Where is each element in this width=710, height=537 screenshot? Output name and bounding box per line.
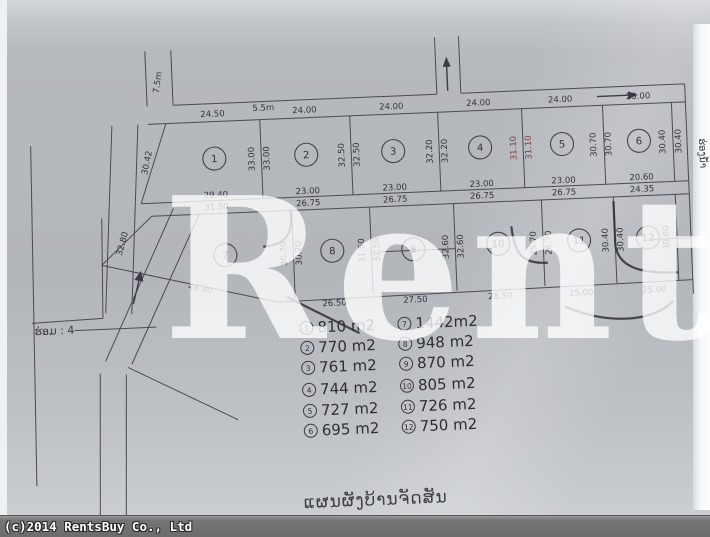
dim-label: 30.40: [658, 129, 669, 154]
legend-item-number: 4: [307, 386, 312, 395]
legend-item-number: 6: [308, 427, 313, 436]
dim-label: 32.80: [115, 231, 131, 257]
copyright-text: (c)2014 RentsBuy Co., Ltd: [0, 516, 192, 534]
legend-item-area: 695 m2: [321, 419, 379, 439]
dim-label: 24.00: [548, 95, 573, 106]
dim-label: 30.70: [589, 132, 600, 157]
legend-item: 11726 m2: [401, 395, 477, 416]
legend-item-area: 750 m2: [419, 415, 477, 435]
dim-label: 24.00: [292, 105, 317, 116]
alley-leader-line: [74, 327, 156, 330]
site-plan-drawing: 7.5m24.505.5m24.0024.0024.0024.0025.0030…: [0, 0, 710, 537]
left-road-lines: [84, 125, 154, 519]
legend-item-number: 11: [403, 403, 413, 412]
legend-item-area: 726 m2: [419, 395, 477, 415]
plot-number: 5: [559, 139, 566, 150]
dim-label: 30.42: [140, 150, 155, 176]
north-arrow-head: [442, 57, 450, 67]
plot-number: 4: [477, 143, 484, 154]
legend-item: 6695 m2: [304, 419, 380, 440]
top-road-lines: [147, 84, 685, 125]
legend-item-number: 5: [307, 407, 312, 416]
left-block-lines: [28, 218, 106, 323]
watermark-text: Rents: [163, 155, 710, 385]
dim-label: 24.50: [200, 109, 225, 120]
dim-label: 24.00: [379, 102, 404, 113]
plan-left-border: [23, 146, 45, 486]
legend-item-number: 12: [404, 422, 414, 431]
dim-label: 7.5m: [152, 71, 165, 94]
dim-label: 25.00: [626, 91, 651, 102]
dim-label: 5.5m: [252, 103, 274, 114]
north-arrow-line: [447, 63, 448, 91]
dim-label: 24.00: [466, 98, 491, 109]
legend-item: 5727 m2: [303, 399, 379, 420]
photo-of-subdivision-plan: 7.5m24.505.5m24.0024.0024.0024.0025.0030…: [0, 0, 710, 537]
top-vertical-road-lines: [145, 36, 461, 106]
diagonal-road-arrow-line: [132, 279, 140, 304]
dim-label: 30.40: [674, 129, 685, 154]
plot-number: 6: [636, 136, 643, 147]
plan-caption: ແຜນຜັງບ້ານຈັດສັນ: [303, 485, 448, 513]
copyright-bar: (c)2014 RentsBuy Co., Ltd: [0, 515, 710, 537]
dim-label: 30.70: [604, 132, 615, 157]
legend-item: 12750 m2: [402, 415, 478, 436]
alley-label: ຮ່ອມ : 4: [34, 324, 74, 339]
legend-item-area: 727 m2: [321, 399, 379, 419]
